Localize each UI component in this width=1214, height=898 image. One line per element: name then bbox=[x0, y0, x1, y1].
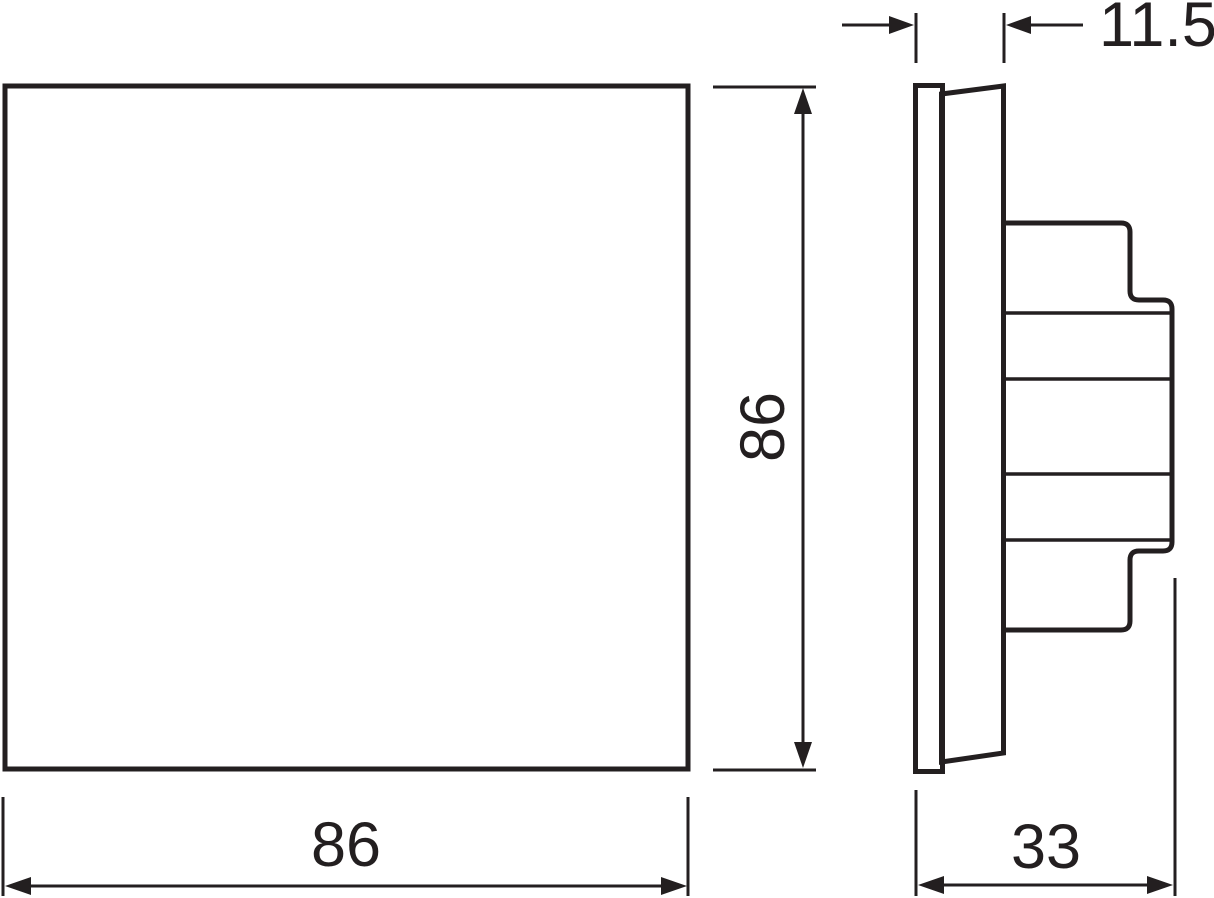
drawing-svg: 86 86 33 11.5 bbox=[0, 0, 1214, 898]
side-view bbox=[916, 86, 1173, 772]
arrow-up-icon bbox=[794, 88, 812, 114]
arrow-right-icon bbox=[1147, 876, 1173, 894]
arrow-left-icon bbox=[5, 877, 31, 895]
front-depth-dimension: 11.5 bbox=[842, 0, 1214, 63]
width-dimension-label: 86 bbox=[311, 810, 381, 880]
side-view-glass-panel bbox=[942, 86, 1004, 762]
front-depth-dimension-label: 11.5 bbox=[1099, 0, 1214, 60]
arrow-right-icon bbox=[889, 16, 914, 34]
arrow-left-icon bbox=[918, 876, 944, 894]
height-dimension: 86 bbox=[713, 87, 816, 770]
arrow-down-icon bbox=[794, 742, 812, 768]
dimension-drawing: 86 86 33 11.5 bbox=[0, 0, 1214, 898]
height-dimension-label: 86 bbox=[728, 392, 798, 462]
depth-dimension-label: 33 bbox=[1011, 812, 1081, 882]
depth-dimension: 33 bbox=[916, 578, 1175, 896]
side-view-wall-plate bbox=[916, 86, 943, 772]
side-view-flush-mount-box bbox=[1004, 223, 1172, 630]
front-view-outline bbox=[5, 86, 688, 769]
width-dimension: 86 bbox=[3, 797, 688, 896]
arrow-left-icon bbox=[1006, 16, 1031, 34]
side-view-box-segment-lines bbox=[1004, 313, 1170, 540]
arrow-right-icon bbox=[661, 877, 687, 895]
